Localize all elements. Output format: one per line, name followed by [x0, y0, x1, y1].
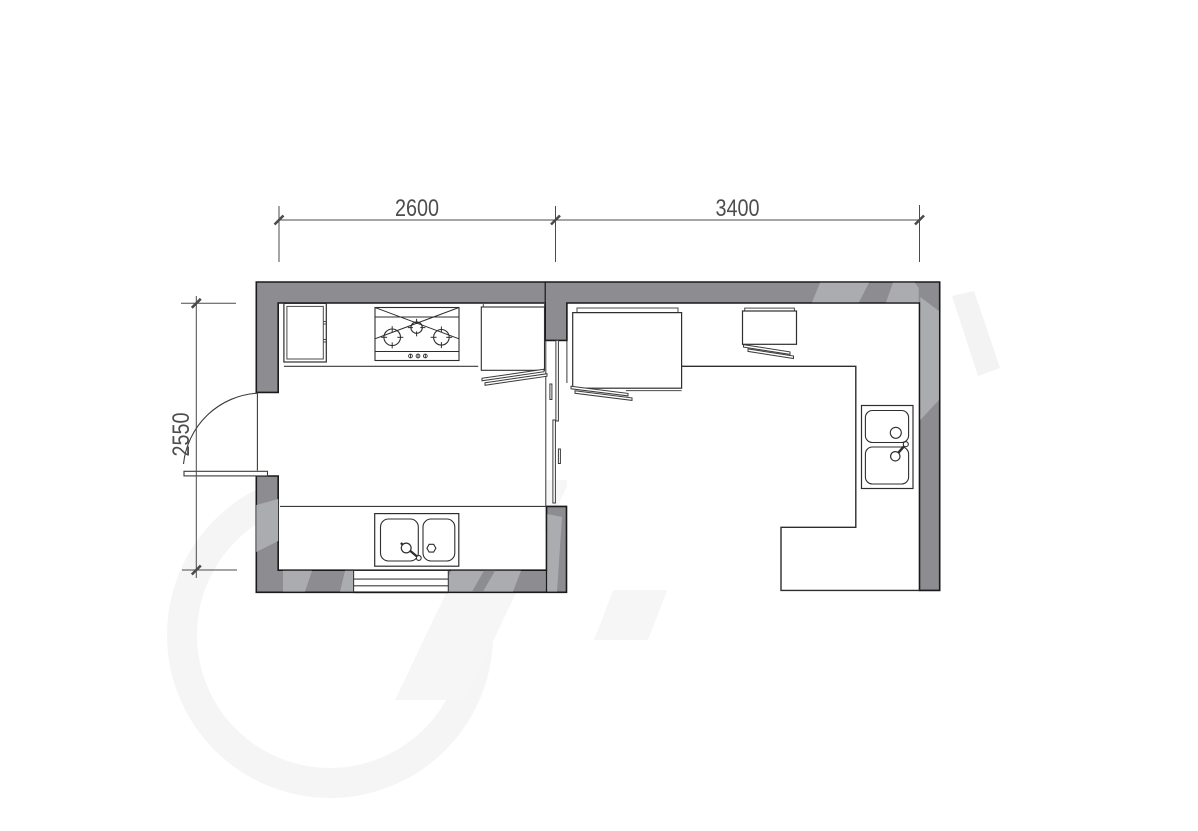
- svg-text:2550: 2550: [168, 413, 195, 457]
- svg-text:2600: 2600: [395, 195, 439, 222]
- svg-text:3400: 3400: [716, 195, 760, 222]
